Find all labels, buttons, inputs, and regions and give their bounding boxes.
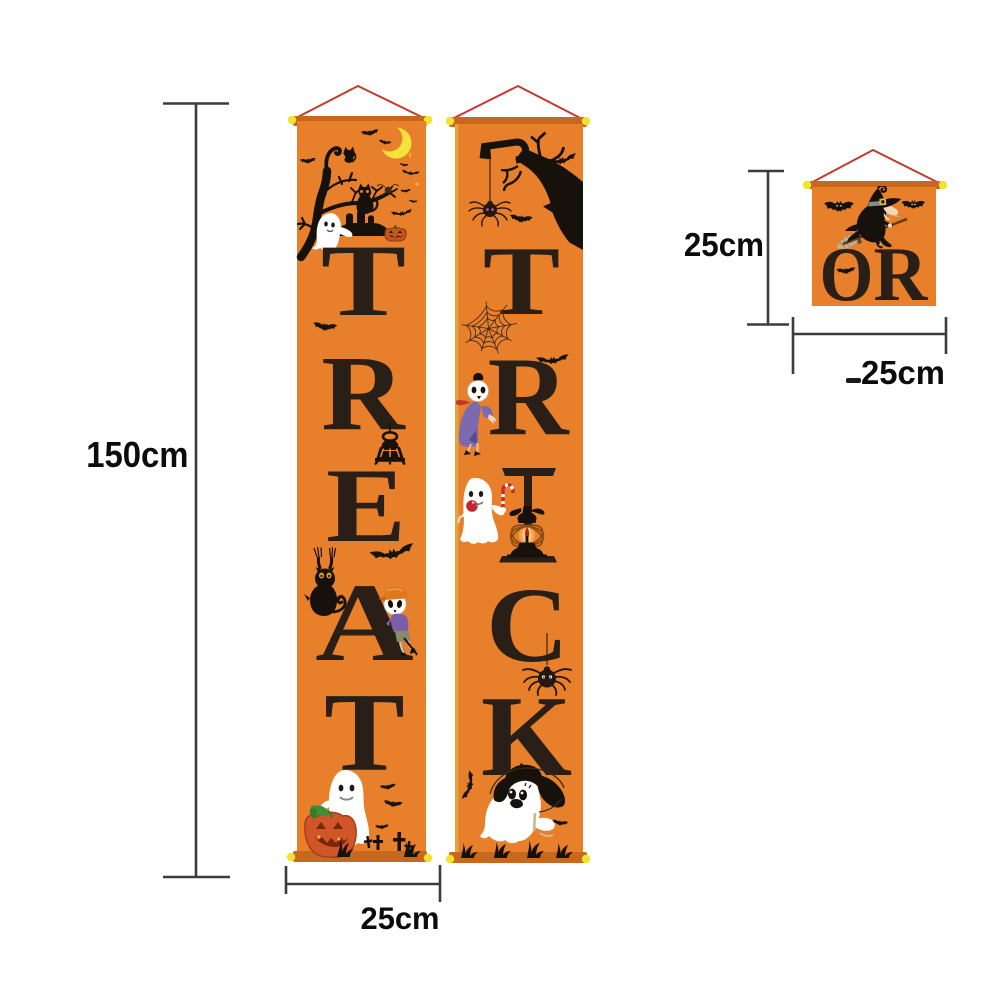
svg-text:R: R (488, 335, 570, 459)
svg-text:R: R (321, 335, 406, 453)
svg-text:E: E (326, 447, 406, 564)
svg-text:25cm: 25cm (684, 226, 764, 263)
svg-text:25cm: 25cm (361, 901, 440, 936)
svg-text:C: C (486, 565, 569, 684)
svg-text:25cm: 25cm (861, 355, 945, 392)
svg-text:T: T (321, 224, 406, 338)
svg-text:150cm: 150cm (86, 435, 188, 475)
